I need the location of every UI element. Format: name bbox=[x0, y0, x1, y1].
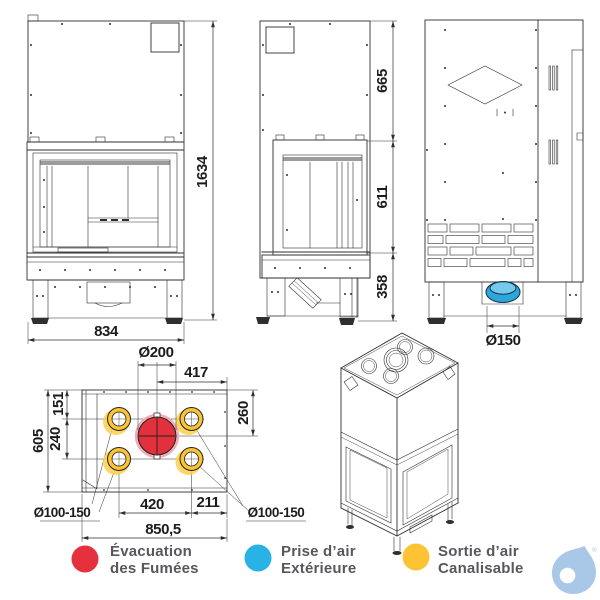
side-diagonal-duct bbox=[289, 278, 340, 308]
edge-to-outlet-row-label: 151 bbox=[50, 392, 67, 416]
side-hood-label: 665 bbox=[374, 69, 391, 93]
logo-registered-mark: ® bbox=[592, 546, 597, 554]
front-base-dots bbox=[39, 269, 166, 271]
back-left-foot bbox=[427, 318, 446, 324]
dim-edge-to-flue: 260 bbox=[227, 390, 258, 436]
side-firebox-interior bbox=[286, 162, 358, 248]
ducted-outlet-top-right bbox=[176, 408, 204, 436]
front-width-label: 834 bbox=[94, 323, 119, 340]
front-right-foot bbox=[165, 318, 183, 324]
iso-view bbox=[341, 333, 458, 555]
dim-side-firebox: 611 bbox=[367, 141, 397, 253]
iso-corner-glass bbox=[346, 445, 452, 525]
back-screw-dots bbox=[426, 29, 537, 221]
side-right-foot bbox=[339, 318, 355, 325]
dim-side-hood: 665 bbox=[367, 21, 397, 141]
dim-back-inlet: Ø150 bbox=[485, 306, 520, 349]
col-to-edge-label: 211 bbox=[197, 494, 220, 511]
outlets-left-label: Ø100-150 bbox=[34, 505, 91, 520]
top-view: Ø200 417 151 240 605 260 420 211 bbox=[30, 344, 306, 542]
ducted-outlet-top-left bbox=[103, 408, 131, 436]
top-width-label: 850,5 bbox=[145, 521, 181, 538]
depth-label: 605 bbox=[30, 429, 47, 453]
flue-to-edge-label: 417 bbox=[184, 364, 208, 381]
iso-left-plate bbox=[344, 377, 358, 391]
legend-air-duct-dot bbox=[403, 544, 430, 571]
flue-diameter-label: Ø200 bbox=[138, 344, 173, 361]
back-vent-slots-vertical bbox=[549, 66, 558, 164]
front-apron-dots bbox=[36, 286, 178, 297]
legend: Évacuation des Fumées Prise d’air Extéri… bbox=[72, 543, 524, 577]
outlet-cols-gap-label: 420 bbox=[140, 496, 164, 513]
side-firebox-label: 611 bbox=[374, 185, 391, 208]
legend-air-duct-line1: Sortie d’air bbox=[438, 543, 519, 560]
side-screw-dots bbox=[262, 23, 368, 131]
back-diamond-plate bbox=[448, 66, 522, 104]
dim-front-height: 1634 bbox=[184, 21, 217, 320]
dim-front-width: 834 bbox=[28, 322, 184, 344]
front-screw-dots bbox=[30, 23, 182, 134]
flame-drop-icon bbox=[552, 546, 596, 594]
dim-bottom-stack: 420 211 850,5 bbox=[82, 494, 227, 542]
outlet-rows-gap-label: 240 bbox=[47, 427, 64, 451]
edge-to-flue-label: 260 bbox=[235, 401, 252, 425]
legend-smoke-line2: des Fumées bbox=[110, 560, 199, 577]
front-height-label: 1634 bbox=[194, 155, 211, 188]
ducted-outlet-bottom-right bbox=[176, 448, 204, 476]
back-view: Ø150 bbox=[425, 20, 583, 349]
back-inlet-label: Ø150 bbox=[485, 332, 520, 349]
air-inlet-collar bbox=[486, 282, 520, 303]
dim-flue-to-edge: 417 bbox=[157, 364, 227, 390]
side-base-label: 358 bbox=[374, 275, 391, 299]
legend-air-intake-line2: Extérieure bbox=[281, 560, 356, 577]
technical-drawing-sheet: 1634 834 bbox=[0, 0, 600, 600]
side-view: 665 611 358 bbox=[256, 21, 397, 325]
logo-swirl-hole bbox=[560, 568, 576, 584]
back-vent-grid bbox=[428, 224, 533, 267]
back-right-foot bbox=[564, 318, 583, 324]
flue-outlet bbox=[136, 413, 178, 459]
dim-left-stack: 151 240 605 bbox=[30, 390, 84, 492]
side-left-foot bbox=[256, 317, 270, 324]
air-inlet-inner bbox=[490, 282, 516, 294]
iso-top-rings bbox=[362, 340, 435, 384]
legend-smoke-dot bbox=[72, 546, 99, 573]
legend-air-intake-line1: Prise d’air bbox=[281, 543, 356, 560]
legend-air-intake-dot bbox=[245, 545, 272, 572]
brand-logo: ® bbox=[552, 546, 597, 594]
ducted-outlet-bottom-left bbox=[103, 448, 131, 476]
legend-smoke-line1: Évacuation bbox=[110, 543, 192, 560]
dim-side-base: 358 bbox=[358, 253, 397, 321]
front-left-foot bbox=[31, 318, 49, 324]
legend-air-duct-line2: Canalisable bbox=[438, 560, 524, 577]
front-firebox-interior bbox=[43, 166, 158, 247]
front-view: 1634 834 bbox=[27, 15, 217, 344]
fireplace-technical-drawing: 1634 834 bbox=[0, 0, 600, 600]
outlets-right-label: Ø100-150 bbox=[248, 505, 305, 520]
